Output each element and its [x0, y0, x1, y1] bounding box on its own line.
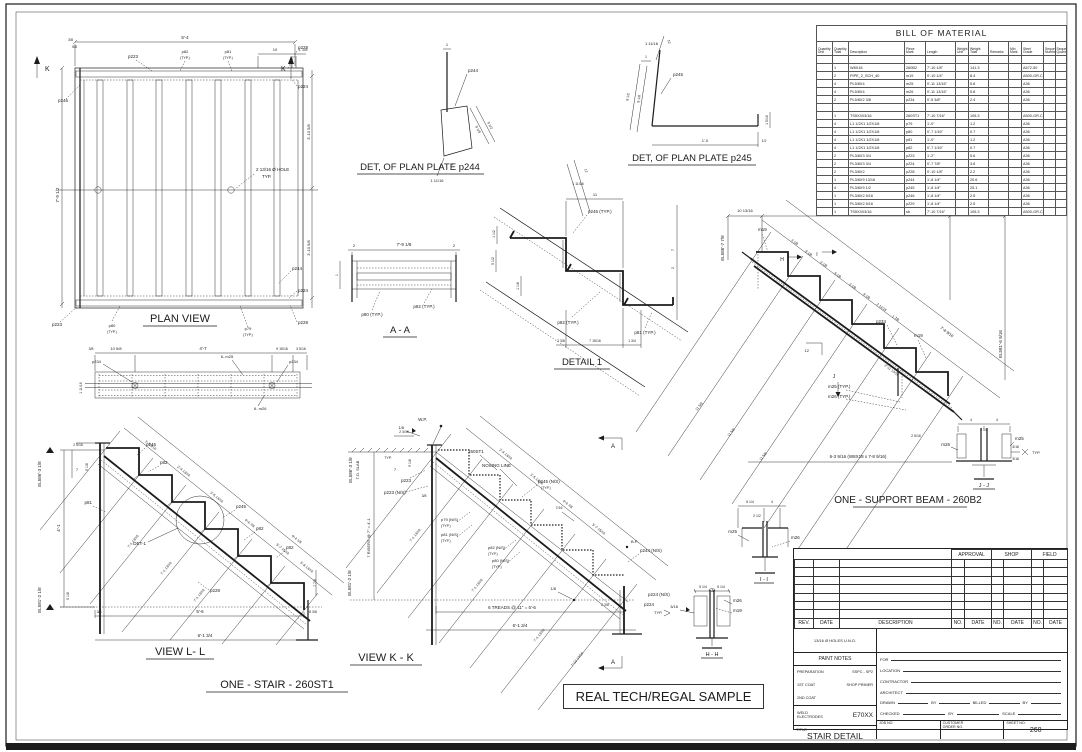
dim-label: 5 1/2 — [491, 257, 495, 265]
table-cell — [817, 152, 833, 160]
dim-label: 9 1/8 — [408, 459, 412, 467]
view-title: VIEW K - K — [358, 652, 414, 664]
table-row — [795, 585, 1068, 593]
table-cell: L1 1/2X1 1/2X1/8 — [849, 120, 905, 128]
table-cell: 0'-7 1/16" — [926, 144, 956, 152]
table-cell — [1055, 192, 1067, 200]
piece-label: p234 — [92, 359, 102, 364]
table-cell: PL3/8X9 13/16 — [849, 176, 905, 184]
dim-label: 1 11/16 — [79, 382, 83, 393]
table-cell — [905, 56, 926, 64]
table-cell — [849, 104, 905, 112]
table-cell: PL3/8X3 3/4 — [849, 160, 905, 168]
table-cell: m26 — [905, 88, 926, 96]
table-cell: 4 — [833, 80, 849, 88]
table-cell — [989, 120, 1009, 128]
table-cell: 105.3 — [969, 112, 989, 120]
table-cell: 1.2 — [969, 120, 989, 128]
dim-label: 1'-0 — [702, 138, 709, 143]
section-arrow-k-left — [34, 56, 40, 64]
table-cell — [1044, 560, 1068, 568]
dim-label: 3/8 — [89, 347, 94, 351]
dim-label: 9 1/8 — [636, 95, 641, 103]
table-cell — [817, 128, 833, 136]
table-cell — [1055, 120, 1067, 128]
table-cell — [1009, 200, 1022, 208]
table-cell — [817, 64, 833, 72]
table-cell — [817, 88, 833, 96]
table-cell — [840, 601, 952, 609]
view-k-k: W.P. 1/8 EL586'-3 1/8 T.O. SLAB EL581'-2… — [346, 416, 670, 710]
table-cell — [989, 208, 1009, 216]
table-cell — [1044, 56, 1056, 64]
table-cell: 8.4 — [969, 72, 989, 80]
table-cell — [1055, 72, 1067, 80]
table-cell — [956, 184, 969, 192]
table-cell — [926, 56, 956, 64]
dim-label: 7'-9 1/2 — [55, 187, 60, 202]
table-cell — [817, 104, 833, 112]
second-coat-label: 2ND COAT — [797, 696, 816, 700]
table-row — [795, 576, 1068, 584]
slope-dim: 8'-4 1/8 — [291, 534, 303, 544]
table-cell — [1044, 152, 1056, 160]
dim-label: 7 — [394, 467, 397, 472]
nosing-label: NOSING LINE — [482, 463, 511, 468]
dim-label: 2 1/2 — [980, 428, 988, 432]
dim-label: 1 — [645, 55, 647, 59]
typ-label: (TYP.) — [488, 552, 498, 556]
dim-label: 2 3/8 — [601, 603, 609, 607]
table-cell — [1044, 104, 1056, 112]
piece-label: p228 — [210, 588, 221, 593]
table-cell: p223 — [905, 152, 926, 160]
table-cell — [1009, 136, 1022, 144]
elevation-label: EL586'-3 1/8 — [348, 457, 353, 483]
title-block-right: FOR LOCATION CONTRACTOR ARCHITECT DRAWNB… — [877, 629, 1067, 739]
table-cell: 0'-7 1/16" — [926, 128, 956, 136]
table-cell: 1 — [833, 64, 849, 72]
table-cell — [956, 144, 969, 152]
piece-label: m19 — [733, 608, 742, 613]
title-block-left: 13/16 Ø HOLES U.N.O. PAINT NOTES PREPARA… — [794, 629, 877, 739]
table-row — [817, 56, 1067, 64]
table-cell: 2 — [833, 160, 849, 168]
dim-label: 1 11/16 — [430, 178, 444, 183]
slope-dim: 3'-5 13/16 — [209, 491, 224, 504]
section-h-h: 5 1/4 5 1/4 3/16 m26 m19 H - H — [670, 585, 742, 658]
table-cell — [1022, 104, 1044, 112]
table-cell — [1009, 64, 1022, 72]
table-cell — [952, 601, 965, 609]
dim-label: 12 — [667, 39, 672, 44]
table-cell: 2.4 — [969, 96, 989, 104]
sheet-number: 260 — [1004, 727, 1067, 734]
approval-header: APPROVAL — [952, 550, 992, 560]
section-j-j: 4 4 2 1/2 m26 m25 3/16 3/16 TYP. J - J — [941, 418, 1040, 489]
table-cell: 7'-10 1/8" — [926, 64, 956, 72]
sheet-no-cell: SHEET NO.260 — [1004, 721, 1067, 739]
elevation-label: EL581'-2 1/8 — [37, 587, 42, 613]
piece-label: p245 — [673, 72, 684, 77]
slope-dim: 7'-1 13/16 — [193, 588, 206, 603]
table-cell — [989, 72, 1009, 80]
table-cell: TS5X3X3/16 — [849, 112, 905, 120]
table-cell — [795, 585, 814, 593]
table-cell — [833, 104, 849, 112]
bom-header: SequenceQuantity — [1055, 42, 1067, 56]
hole-note: TYP. — [262, 174, 271, 179]
table-cell — [814, 585, 840, 593]
table-cell — [1009, 96, 1022, 104]
table-cell — [1055, 176, 1067, 184]
electrode-value: E70XX — [853, 712, 873, 719]
dim-label: 6'-1 3/4 — [198, 633, 213, 638]
table-cell — [814, 601, 840, 609]
date-label: DATE — [965, 618, 992, 628]
table-cell — [956, 96, 969, 104]
table-cell — [956, 104, 969, 112]
typ-label: TYP. — [654, 610, 662, 615]
detail-title: DET, OF PLAN PLATE p245 — [632, 153, 752, 164]
bom-header: MinMark — [1009, 42, 1022, 56]
table-row: 4PL5/8X4m260'-11 13/16"5.8A36 — [817, 88, 1067, 96]
table-cell — [1055, 56, 1067, 64]
table-cell — [1055, 152, 1067, 160]
piece-label: p245 — [236, 504, 247, 509]
slope-dim: 3 1/8 — [790, 238, 799, 246]
table-cell — [956, 56, 969, 64]
piece-label: m26 (TYP.) — [828, 394, 851, 399]
table-cell — [1004, 601, 1032, 609]
piece-label: m25 — [1015, 436, 1024, 441]
paint-notes-header: PAINT NOTES — [794, 653, 876, 666]
piece-label: p223 — [401, 478, 412, 483]
piece-label: p82 (TYP.) — [557, 320, 579, 325]
table-cell — [1044, 576, 1068, 584]
table-cell — [989, 144, 1009, 152]
field-header: FIELD — [1032, 550, 1068, 560]
table-cell: 4 — [833, 144, 849, 152]
table-cell — [817, 72, 833, 80]
table-cell — [1055, 136, 1067, 144]
table-cell: TS5X3X3/16 — [849, 208, 905, 216]
piece-label: p81 — [84, 500, 92, 505]
table-cell — [1009, 88, 1022, 96]
slope-dim: 2 11/16 — [876, 302, 888, 312]
table-row: 1PL3/8X2 5/16p2461'-8 1/4"2.5A36 — [817, 192, 1067, 200]
dim-label: 4'-7 — [199, 346, 207, 351]
slope-dim: 3 1/8 — [819, 260, 828, 268]
table-cell — [956, 64, 969, 72]
table-cell — [992, 593, 1004, 601]
table-cell: 20.6 — [969, 176, 989, 184]
dim-label: 2 3/16 — [399, 430, 409, 434]
tread-note: 6 TREADS @ 11" = 5'-6 — [488, 605, 536, 610]
typ-label: (TYP.) — [492, 565, 502, 569]
dim-label: 2 — [671, 267, 675, 269]
section-arrow-i — [832, 250, 837, 255]
table-cell — [1055, 88, 1067, 96]
table-cell: 0'-11 13/16" — [926, 80, 956, 88]
table-cell — [989, 56, 1009, 64]
piece-label: p244 — [468, 68, 479, 73]
weld-size: 3/16 — [1012, 445, 1019, 449]
table-row — [795, 560, 1068, 568]
table-cell: 4 — [833, 120, 849, 128]
table-cell — [956, 80, 969, 88]
approval-header-row: APPROVAL SHOP FIELD — [795, 550, 1068, 560]
piece-label: m26 — [733, 598, 742, 603]
table-cell: PL5/8X2 3/8 — [849, 96, 905, 104]
bom-header: SteelGrade — [1022, 42, 1044, 56]
table-cell: 5.6 — [969, 152, 989, 160]
table-cell: PL3/8X3 3/4 — [849, 152, 905, 160]
table-cell: PIPE_2_SCH_40 — [849, 72, 905, 80]
table-cell: PL3/8X2 — [849, 168, 905, 176]
table-cell — [814, 610, 840, 618]
table-cell — [817, 96, 833, 104]
table-cell — [989, 152, 1009, 160]
table-cell — [965, 568, 992, 576]
table-cell: 2 — [833, 72, 849, 80]
slope-dim: 1 7/8 — [891, 314, 900, 322]
checked-field: CHECKEDBYSCALE — [880, 710, 1064, 716]
table-row — [795, 601, 1068, 609]
table-cell: 1'-8 1/4" — [926, 184, 956, 192]
dim-label: 3 5/16 — [296, 347, 306, 351]
table-cell — [989, 136, 1009, 144]
table-cell: 1'-8 1/4" — [926, 176, 956, 184]
table-cell — [1044, 168, 1056, 176]
description-label: DESCRIPTION — [840, 618, 952, 628]
table-row — [795, 568, 1068, 576]
table-cell — [1044, 593, 1068, 601]
section-letter: I — [816, 252, 817, 258]
table-row — [795, 610, 1068, 618]
table-cell — [1044, 184, 1056, 192]
typ-label: (TYP.) — [441, 539, 451, 543]
weld-electrodes-row: WELDELECTRODES E70XX — [794, 705, 876, 726]
revision-table: APPROVAL SHOP FIELD REV. DATE DESCRIPTIO… — [794, 549, 1068, 629]
bom-header: WeightTotal — [969, 42, 989, 56]
table-row: 4L1 1/2X1 1/2X1/8p791'-0"1.2A36 — [817, 120, 1067, 128]
table-cell: p229 — [905, 200, 926, 208]
table-cell — [849, 56, 905, 64]
drawn-field: DRAWNBYBILLEDBY — [880, 699, 1064, 705]
table-cell — [817, 192, 833, 200]
table-cell — [1055, 160, 1067, 168]
table-row: 1PL3/8X2 5/16p2291'-8 1/4"2.5A36 — [817, 200, 1067, 208]
table-cell — [956, 88, 969, 96]
table-cell — [1044, 96, 1056, 104]
table-cell: 1'-8 1/4" — [926, 200, 956, 208]
slope-dim: 9 1/8 — [862, 292, 871, 300]
dim-label: 9 1/2 — [486, 121, 493, 130]
piece-label: p81 — [225, 49, 232, 54]
table-cell — [989, 184, 1009, 192]
section-letter: A — [611, 444, 615, 450]
table-cell — [817, 112, 833, 120]
workpoint-label: W.P. — [418, 417, 427, 422]
table-cell — [992, 576, 1004, 584]
table-row: 1W8X18260B27'-10 1/8"141.3A572-50 — [817, 64, 1067, 72]
table-cell: 1'-0" — [926, 136, 956, 144]
table-cell: p228 — [905, 168, 926, 176]
contractor-field: CONTRACTOR — [880, 678, 1064, 684]
piece-label: p80 — [109, 323, 116, 328]
no-label: NO. — [992, 618, 1004, 628]
table-cell — [992, 585, 1004, 593]
table-row: 2PL3/8X2p2280'-10 1/8"2.2A36 — [817, 168, 1067, 176]
table-cell — [817, 200, 833, 208]
piece-label: p228 — [298, 45, 309, 50]
table-cell: 2 — [833, 168, 849, 176]
slope-dim: 4'-6 7/8 — [562, 499, 574, 509]
dim-label: 7 7/8 — [313, 579, 317, 587]
table-cell — [840, 585, 952, 593]
table-cell: A36 — [1022, 168, 1044, 176]
weld-symbol — [686, 607, 690, 612]
typ-label: TYP. — [1032, 450, 1040, 455]
table-cell — [989, 96, 1009, 104]
table-cell: 1 — [833, 208, 849, 216]
table-row — [817, 104, 1067, 112]
typ-label: (TYP.) — [223, 56, 233, 60]
table-cell: 3.8 — [969, 160, 989, 168]
table-cell — [1055, 104, 1067, 112]
holes-note: 13/16 Ø HOLES U.N.O. — [794, 629, 876, 653]
table-cell — [814, 576, 840, 584]
table-cell: PL5/8X4 — [849, 88, 905, 96]
table-cell — [817, 168, 833, 176]
table-cell — [1055, 208, 1067, 216]
table-cell — [956, 168, 969, 176]
table-cell — [1044, 136, 1056, 144]
table-cell — [989, 64, 1009, 72]
elevation-label: EL581'-2 1/8 — [347, 570, 352, 596]
table-cell: 260B2 — [905, 64, 926, 72]
date-label: DATE — [1044, 618, 1068, 628]
table-cell: A36 — [1022, 160, 1044, 168]
piece-label: p224 (N/S) — [648, 592, 670, 597]
dim-label: 10 13/16 — [737, 208, 753, 213]
dim-label: 4 — [996, 418, 998, 422]
table-cell — [1055, 200, 1067, 208]
dim-label: 1 5/16 — [765, 115, 769, 125]
slope-dim: 7'-1 13/16 — [471, 578, 484, 593]
table-cell — [1055, 184, 1067, 192]
table-cell: 1'-2" — [926, 152, 956, 160]
table-cell — [1004, 610, 1032, 618]
weld-size: 3/16 — [670, 604, 679, 609]
table-cell: 0.7 — [969, 144, 989, 152]
table-cell: p224 — [905, 160, 926, 168]
date-label: DATE — [1004, 618, 1032, 628]
table-cell — [952, 610, 965, 618]
section-letter: K — [281, 66, 286, 73]
architect-field: ARCHITECT — [880, 689, 1064, 695]
table-cell — [840, 610, 952, 618]
elevation-label: T.O. SLAB — [355, 460, 360, 479]
dim-label: 3/8 — [68, 38, 73, 42]
dim-label: 7 — [76, 467, 79, 472]
dim-label: 2 3/8 — [557, 339, 565, 343]
table-cell — [989, 112, 1009, 120]
dim-label: 1 1/2 — [492, 230, 496, 238]
table-cell: 4 — [833, 88, 849, 96]
table-cell: 0.7 — [969, 128, 989, 136]
job-no-cell: JOB NO. — [877, 721, 941, 739]
dim-label: 4 — [970, 418, 972, 422]
table-cell: 4 — [833, 136, 849, 144]
piece-label: p244 — [292, 266, 303, 271]
table-cell: A36 — [1022, 192, 1044, 200]
table-cell — [1055, 168, 1067, 176]
elevation-label: EL586'-7 7/8 — [720, 235, 725, 261]
table-cell — [992, 568, 1004, 576]
slope-dim: 7'-8 9/16 — [939, 325, 955, 339]
piece-label: p224 — [298, 84, 309, 89]
dim-label: 6 1/4 — [746, 500, 754, 504]
table-cell: p79 — [905, 120, 926, 128]
bom-body: 1W8X18260B27'-10 1/8"141.3A572-502PIPE_2… — [817, 56, 1067, 216]
slope-dim: 9 1/8 — [833, 271, 842, 279]
detail-title: DET, OF PLAN PLATE p244 — [360, 162, 480, 173]
table-cell — [965, 560, 992, 568]
table-cell: 1 — [833, 200, 849, 208]
table-cell: A36 — [1022, 184, 1044, 192]
elevation-label: EL581'-6 9/16 — [998, 330, 1003, 358]
table-cell — [1044, 585, 1068, 593]
piece-label: p79 (N/S) — [441, 517, 459, 522]
table-cell — [1009, 168, 1022, 176]
piece-label: p223 (N/S) — [384, 490, 406, 495]
piece-label: p234 — [289, 359, 299, 364]
table-cell: m25 — [905, 80, 926, 88]
dim-label: 7 — [670, 248, 675, 251]
dim-label: 2 — [353, 243, 356, 248]
typ-label: (TYP.) — [107, 330, 117, 334]
table-cell: 7'-10 7/16" — [926, 208, 956, 216]
table-cell: 141.3 — [969, 64, 989, 72]
preparation-label: PREPARATION — [797, 670, 824, 674]
table-cell — [989, 160, 1009, 168]
table-cell: 0'-10 1/4" — [926, 72, 956, 80]
assembly-title: ONE - SUPPORT BEAM - 260B2 — [834, 495, 982, 506]
piece-label: p82 — [256, 526, 264, 531]
table-cell: L1 1/2X1 1/2X1/8 — [849, 128, 905, 136]
table-cell: 5.8 — [969, 88, 989, 96]
table-cell: A36 — [1022, 96, 1044, 104]
table-cell: 25.1 — [969, 184, 989, 192]
piece-label: p79 — [245, 326, 252, 331]
table-cell — [833, 56, 849, 64]
table-cell — [1044, 601, 1068, 609]
slope-dim: 7'-1 13/16 — [533, 628, 546, 643]
table-row: 2PL3/8X3 3/4p2231'-2"5.6A36 — [817, 152, 1067, 160]
table-row — [795, 593, 1068, 601]
table-cell: 4 — [833, 184, 849, 192]
table-cell — [1004, 576, 1032, 584]
slope-dim: 6'-8 13/16 — [299, 561, 314, 574]
table-cell: 7'-10 7/16" — [926, 112, 956, 120]
table-cell — [1009, 72, 1022, 80]
slope-dim: 3 1/8 — [848, 282, 857, 290]
table-cell — [817, 80, 833, 88]
table-cell — [1055, 64, 1067, 72]
stringer-plan-strip: 3/8 10 5/8 4'-7 9 15/16 3 5/16 1 11/16 p… — [79, 346, 312, 411]
